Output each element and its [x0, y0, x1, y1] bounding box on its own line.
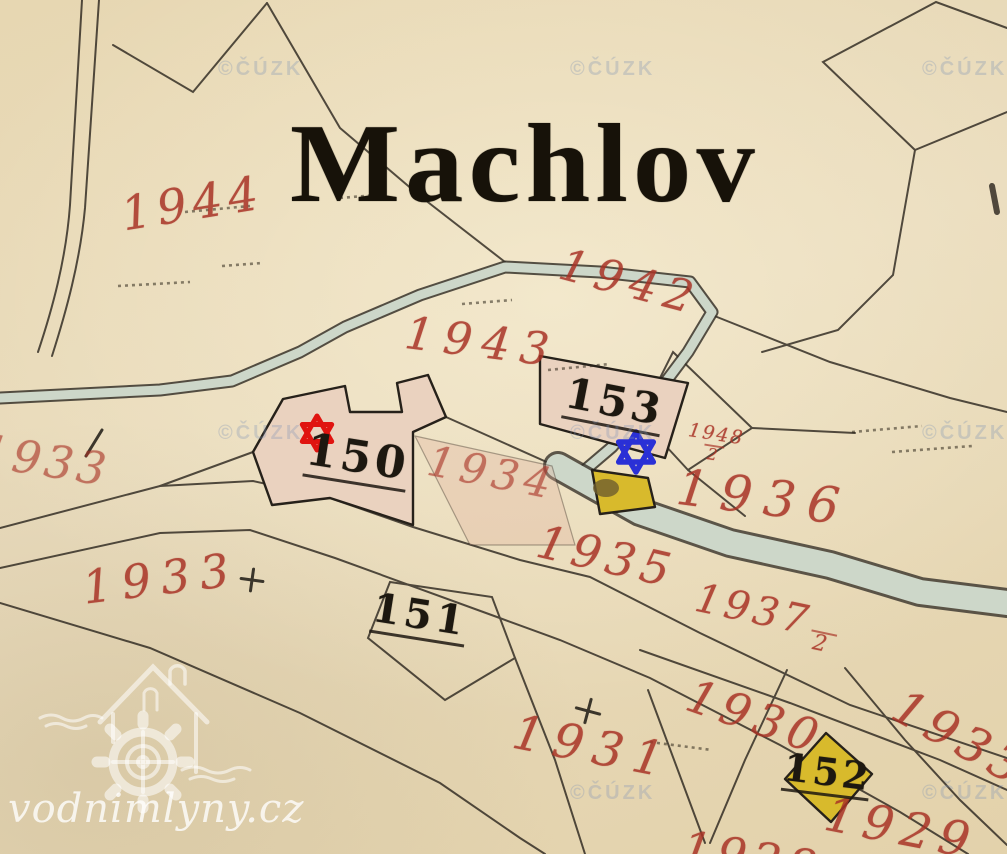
boundary-line: [915, 112, 1007, 150]
pencil-note: [118, 282, 190, 286]
cadastral-map[interactable]: Machlov 1944 1942 1943 1934 19482 1936 1…: [0, 0, 1007, 854]
cuzk-watermark: ©ČÚZK: [218, 58, 303, 81]
building-shading: [593, 479, 619, 497]
cuzk-watermark: ©ČÚZK: [570, 58, 655, 81]
pencil-note: [222, 263, 262, 266]
tick-mark: [992, 186, 997, 212]
boundary-line: [752, 428, 855, 433]
site-watermark-text: vodnimlyny.cz: [8, 786, 304, 832]
pencil-note: [462, 300, 512, 304]
cuzk-watermark: ©ČÚZK: [922, 422, 1007, 445]
cuzk-watermark: ©ČÚZK: [922, 58, 1007, 81]
pencil-note: [852, 426, 922, 432]
cuzk-watermark: ©ČÚZK: [570, 422, 655, 445]
boundary-line: [762, 2, 1007, 352]
road-line: [52, 0, 99, 356]
cuzk-watermark: ©ČÚZK: [570, 782, 655, 805]
pencil-note: [892, 446, 972, 452]
cuzk-watermark: ©ČÚZK: [218, 422, 303, 445]
road-line: [38, 0, 82, 352]
boundary-line: [712, 315, 1007, 412]
map-title: Machlov: [290, 100, 760, 229]
cross-mark: [240, 568, 265, 593]
fraction-denominator: 2: [807, 629, 837, 658]
cuzk-watermark: ©ČÚZK: [922, 782, 1007, 805]
